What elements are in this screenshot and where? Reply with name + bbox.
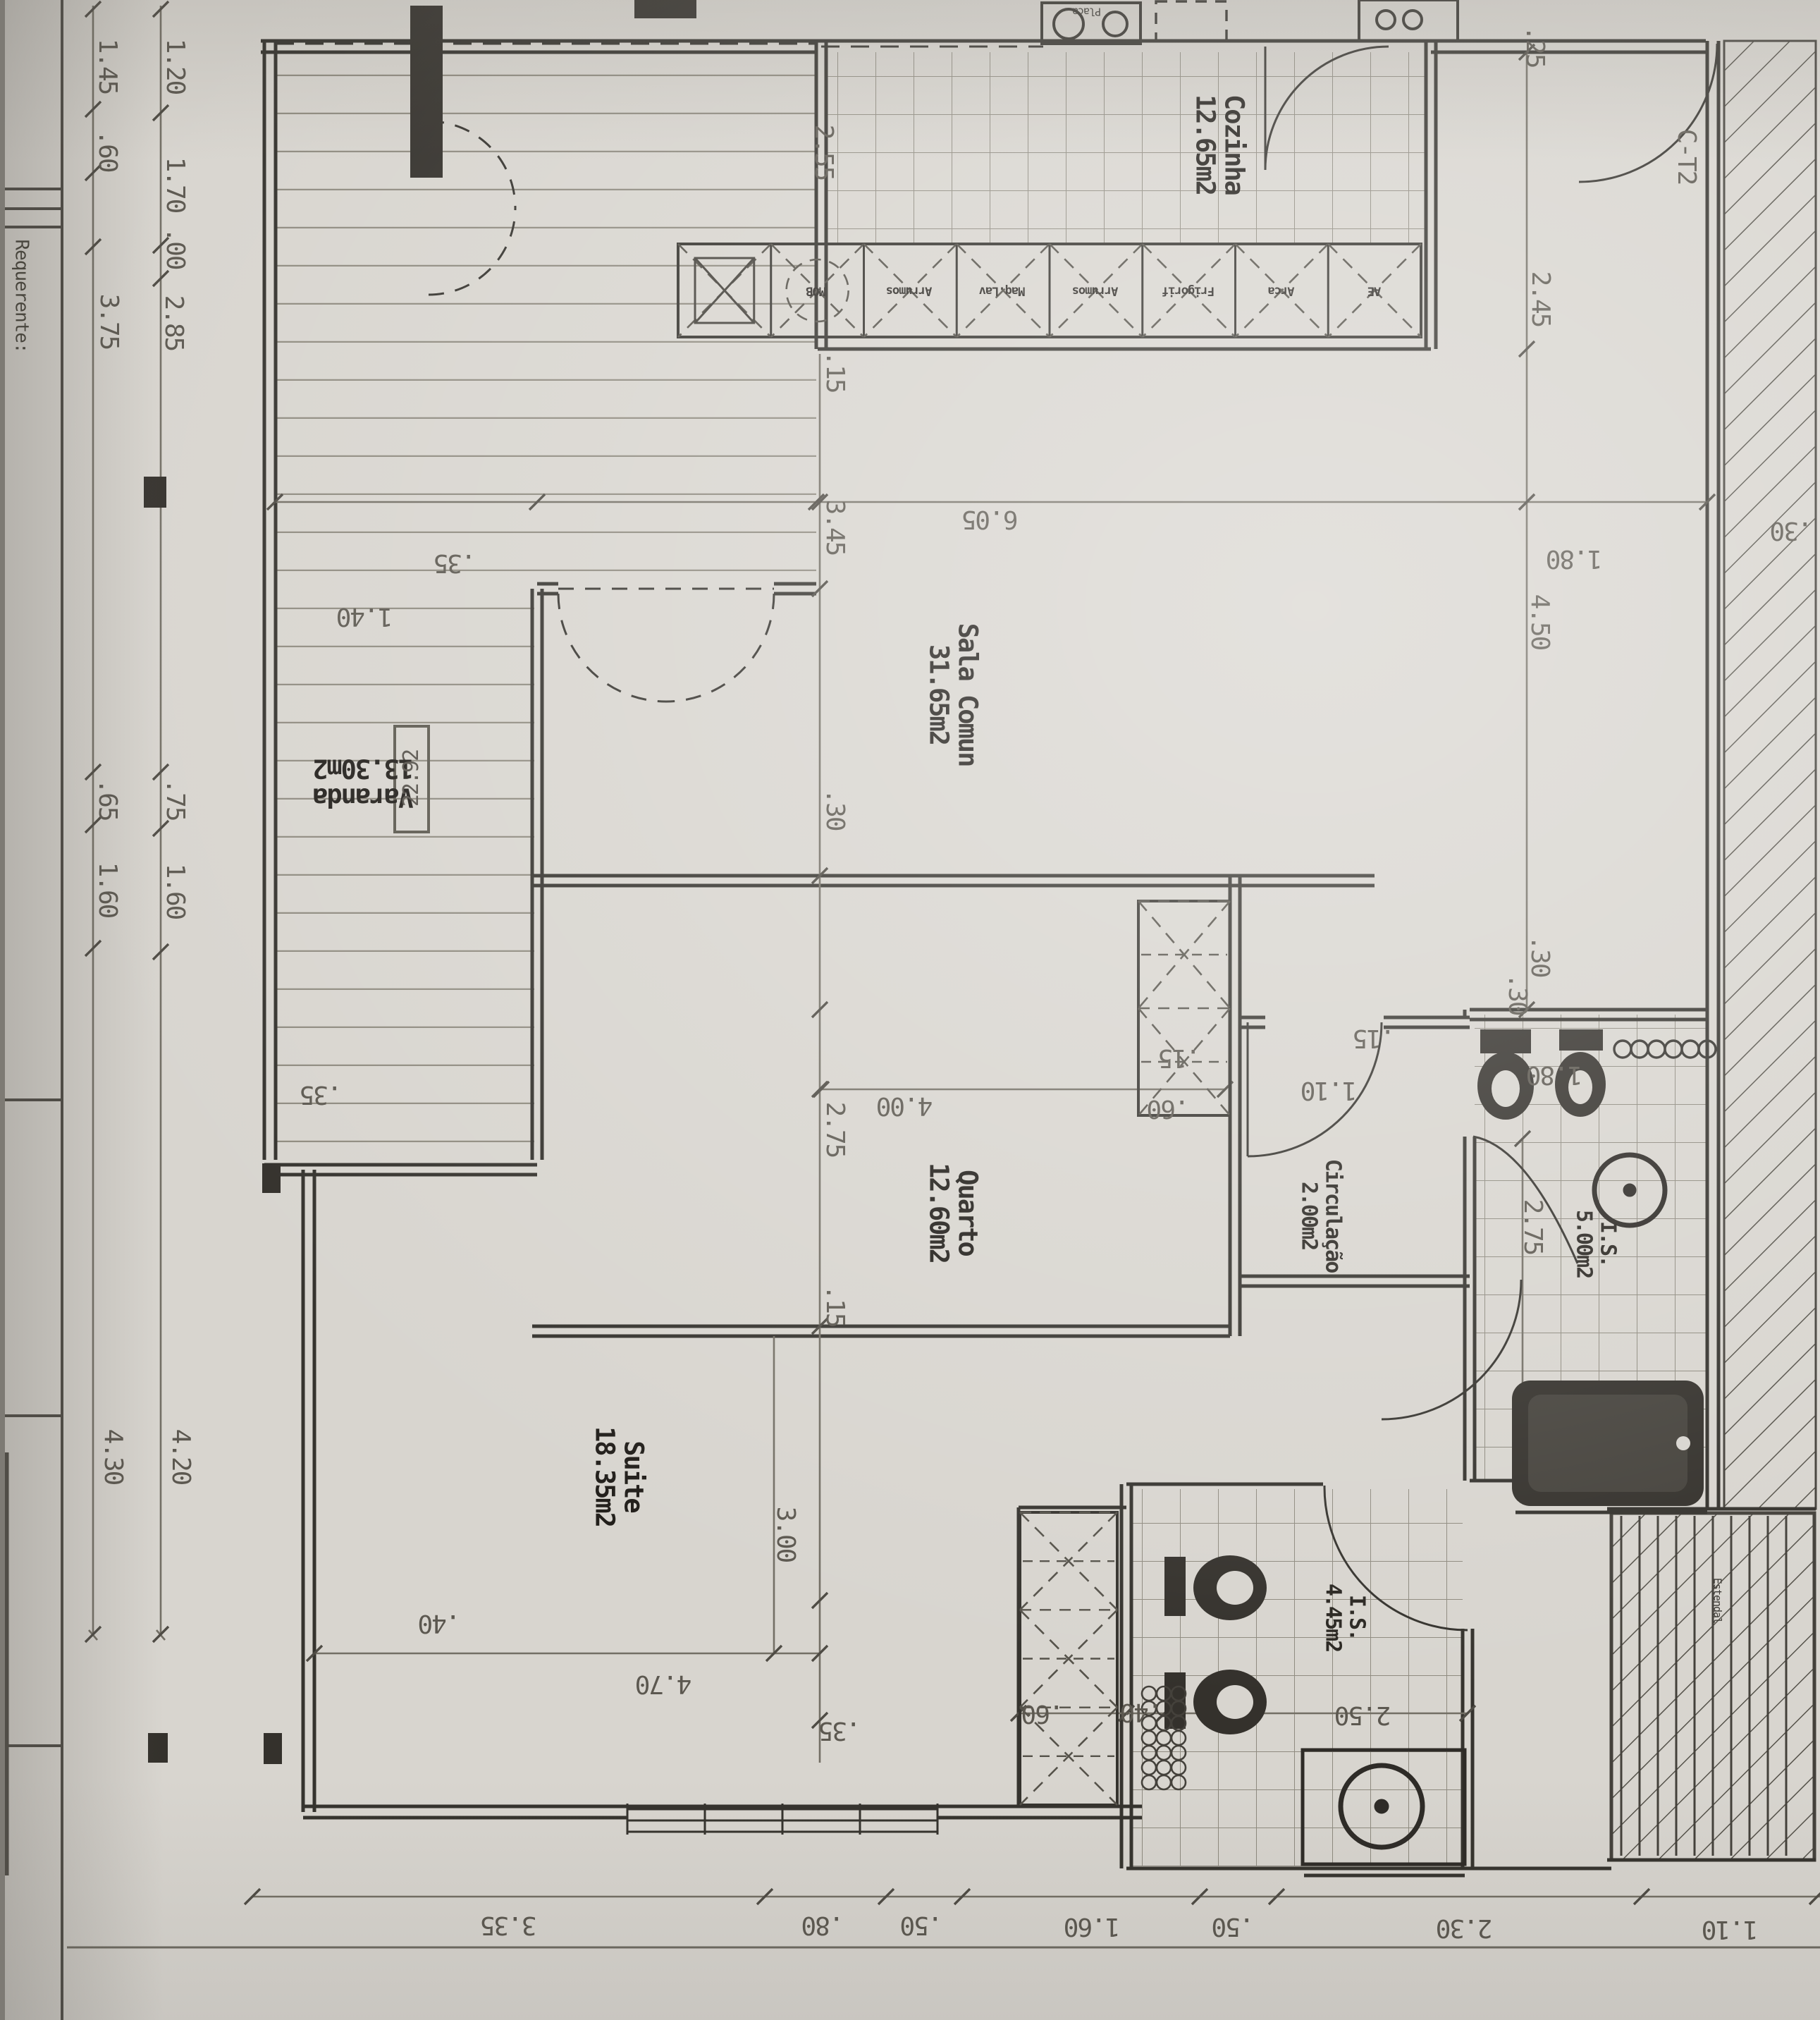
b-50b: .50	[1212, 1912, 1254, 1940]
d-250: 2.50	[1336, 1701, 1391, 1729]
paper-edge-shadow	[0, 0, 5, 2020]
room-cozinha: Cozinha 12.65m2	[1191, 94, 1249, 195]
d-275a: 2.75	[820, 1102, 849, 1158]
d-25: .25	[1520, 25, 1549, 67]
d-345: 3.45	[820, 500, 849, 556]
d-450: 4.50	[1525, 594, 1554, 650]
d-255: 2.55	[809, 125, 837, 180]
kitchen-unit-label: Arrumos	[1073, 283, 1119, 297]
d-30c: .30	[1771, 516, 1812, 544]
d-140: 1.40	[338, 602, 393, 630]
li-285: 2.85	[159, 295, 187, 351]
d-15c: .15	[1159, 1043, 1200, 1072]
d-35b: .35	[300, 1080, 342, 1108]
kitchen-unit-label: Arrumos	[887, 283, 933, 297]
li-160: 1.60	[161, 864, 189, 919]
d-60a: .60	[1148, 1094, 1189, 1122]
d-40a: .40	[419, 1609, 460, 1637]
b-335: 3.35	[481, 1911, 537, 1939]
hob-label: Placa	[1073, 6, 1101, 18]
d-300: 3.00	[771, 1507, 799, 1562]
d-40b: .40	[1121, 1698, 1162, 1726]
lo-145: 1.45	[93, 39, 121, 94]
li-170: 1.70	[161, 157, 189, 213]
room-suite: Suite 18.35m2	[590, 1426, 648, 1526]
li-420: 4.20	[166, 1429, 195, 1485]
lo-430: 4.30	[99, 1429, 127, 1485]
d-60b: .60	[1022, 1699, 1064, 1727]
kitchen-unit-label: Maq.Lav	[980, 283, 1026, 297]
b-50a: .50	[901, 1911, 942, 1939]
d-35a: .35	[434, 549, 476, 577]
floor-plan-photo: Requerente:C-T2.252.45Cozinha 12.65m22.5…	[0, 0, 1820, 2020]
d-30a: .30	[820, 788, 849, 830]
d-275b: 2.75	[1518, 1199, 1547, 1255]
d-35c: .35	[819, 1716, 861, 1744]
room-is1: I.S. 5.00m2	[1572, 1210, 1619, 1278]
d-30b: .30	[1525, 935, 1554, 977]
d-470: 4.70	[637, 1670, 692, 1698]
d-180a: 1.80	[1547, 544, 1603, 573]
room-estendal: Estendal	[1711, 1578, 1723, 1623]
unit-label: C-T2	[1672, 129, 1700, 185]
lo-60: .60	[93, 130, 121, 171]
room-circulacao: Circulação 2.00m2	[1297, 1159, 1344, 1273]
room-is2: I.S. 4.45m2	[1321, 1584, 1368, 1651]
kitchen-unit-label: MOB	[806, 283, 826, 297]
d-605: 6.05	[963, 505, 1019, 533]
b-110: 1.10	[1703, 1915, 1759, 1943]
d-15b: .15	[820, 1285, 849, 1326]
d-15d: .15	[1353, 1024, 1395, 1052]
kitchen-unit-label: Arca	[1269, 283, 1295, 297]
d-400: 4.00	[878, 1091, 933, 1120]
kitchen-unit-label: Frigorif	[1162, 283, 1215, 297]
b-160: 1.60	[1065, 1912, 1121, 1940]
d-245: 2.45	[1526, 271, 1554, 327]
d-110a: 1.10	[1302, 1076, 1358, 1104]
d-180b: 1.80	[1527, 1060, 1583, 1089]
b-80: .80	[802, 1911, 844, 1939]
lo-375: 3.75	[94, 294, 123, 350]
lo-65: .65	[93, 778, 121, 820]
requerente: Requerente:	[11, 239, 31, 353]
lo-160: 1.60	[93, 862, 121, 918]
room-sala: Sala Comun 31.65m2	[924, 623, 983, 766]
room-quarto: Quarto 12.60m2	[924, 1163, 983, 1263]
plan-labels: Requerente:C-T2.252.45Cozinha 12.65m22.5…	[0, 0, 1820, 2020]
li-75: .75	[161, 778, 189, 820]
d-30d: .30	[1503, 973, 1531, 1015]
b-230: 2.30	[1437, 1914, 1493, 1942]
level-marker: 22.92	[400, 750, 424, 807]
kitchen-unit-label: AE	[1368, 283, 1381, 297]
li-120: 1.20	[161, 39, 189, 94]
d-15a: .15	[820, 350, 849, 392]
li-00: .00	[161, 227, 189, 269]
